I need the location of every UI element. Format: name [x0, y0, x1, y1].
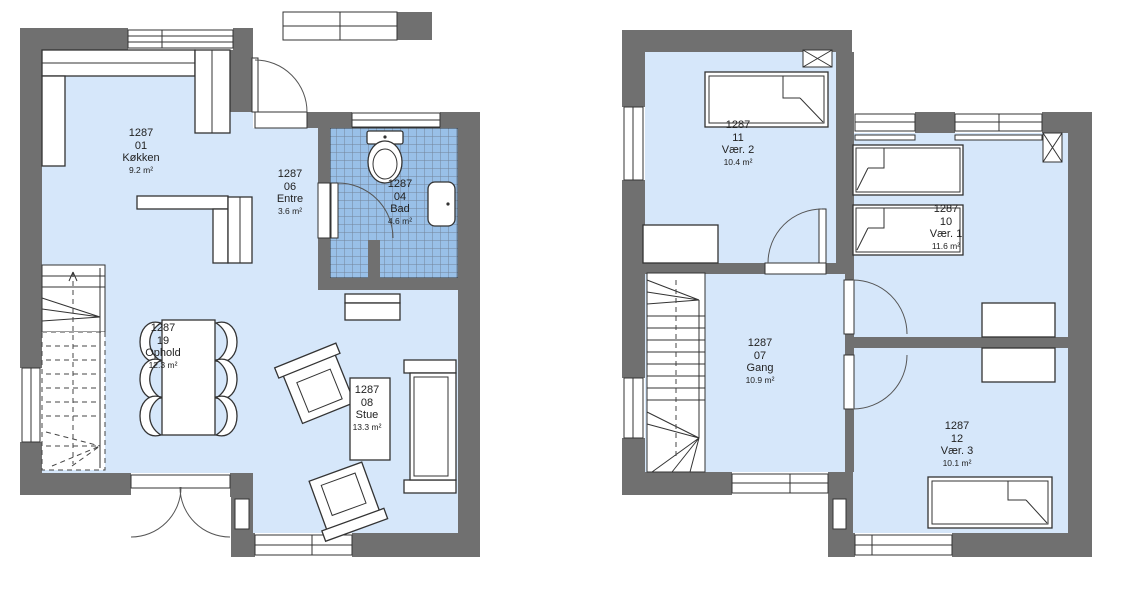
coffee-table — [350, 378, 390, 460]
front-double-door — [131, 475, 230, 537]
living-room-window — [255, 535, 352, 555]
vaer2-bed — [705, 72, 828, 127]
entre-door — [252, 58, 307, 128]
bath-window — [352, 113, 440, 127]
vent-shaft-top — [803, 50, 832, 67]
kitchen-window — [128, 30, 233, 48]
gang-left-window — [624, 378, 643, 438]
vaer1-bed-2 — [853, 205, 963, 255]
ground-floor-stairs — [42, 265, 105, 470]
vaer3-window — [855, 535, 952, 555]
stair-window — [22, 368, 40, 442]
sofa — [404, 360, 456, 493]
vent-shaft-right — [1043, 133, 1062, 162]
floor-plan-drawing: 1287 01 Køkken 9.2 m² 1287 06 Entre 3.6 … — [0, 0, 1122, 600]
gang-bottom-window — [732, 474, 828, 493]
vaer2-desk — [643, 225, 718, 263]
upper-floor-stairs — [647, 273, 705, 472]
toilet — [367, 131, 403, 183]
sideboard — [345, 294, 400, 320]
ground-floor-plan — [20, 12, 480, 557]
porch — [283, 12, 397, 40]
vaer2-window — [624, 107, 643, 180]
sink — [428, 182, 455, 226]
vaer1-window-1 — [855, 114, 915, 140]
vaer1-window-2 — [955, 114, 1042, 140]
upper-floor-plan — [622, 30, 1092, 557]
vaer1-bed-1 — [853, 145, 963, 195]
vaer3-bed — [928, 477, 1052, 528]
floor-plan-svg — [0, 0, 1122, 600]
vaer1-dresser — [982, 303, 1055, 337]
vaer3-dresser — [982, 348, 1055, 382]
